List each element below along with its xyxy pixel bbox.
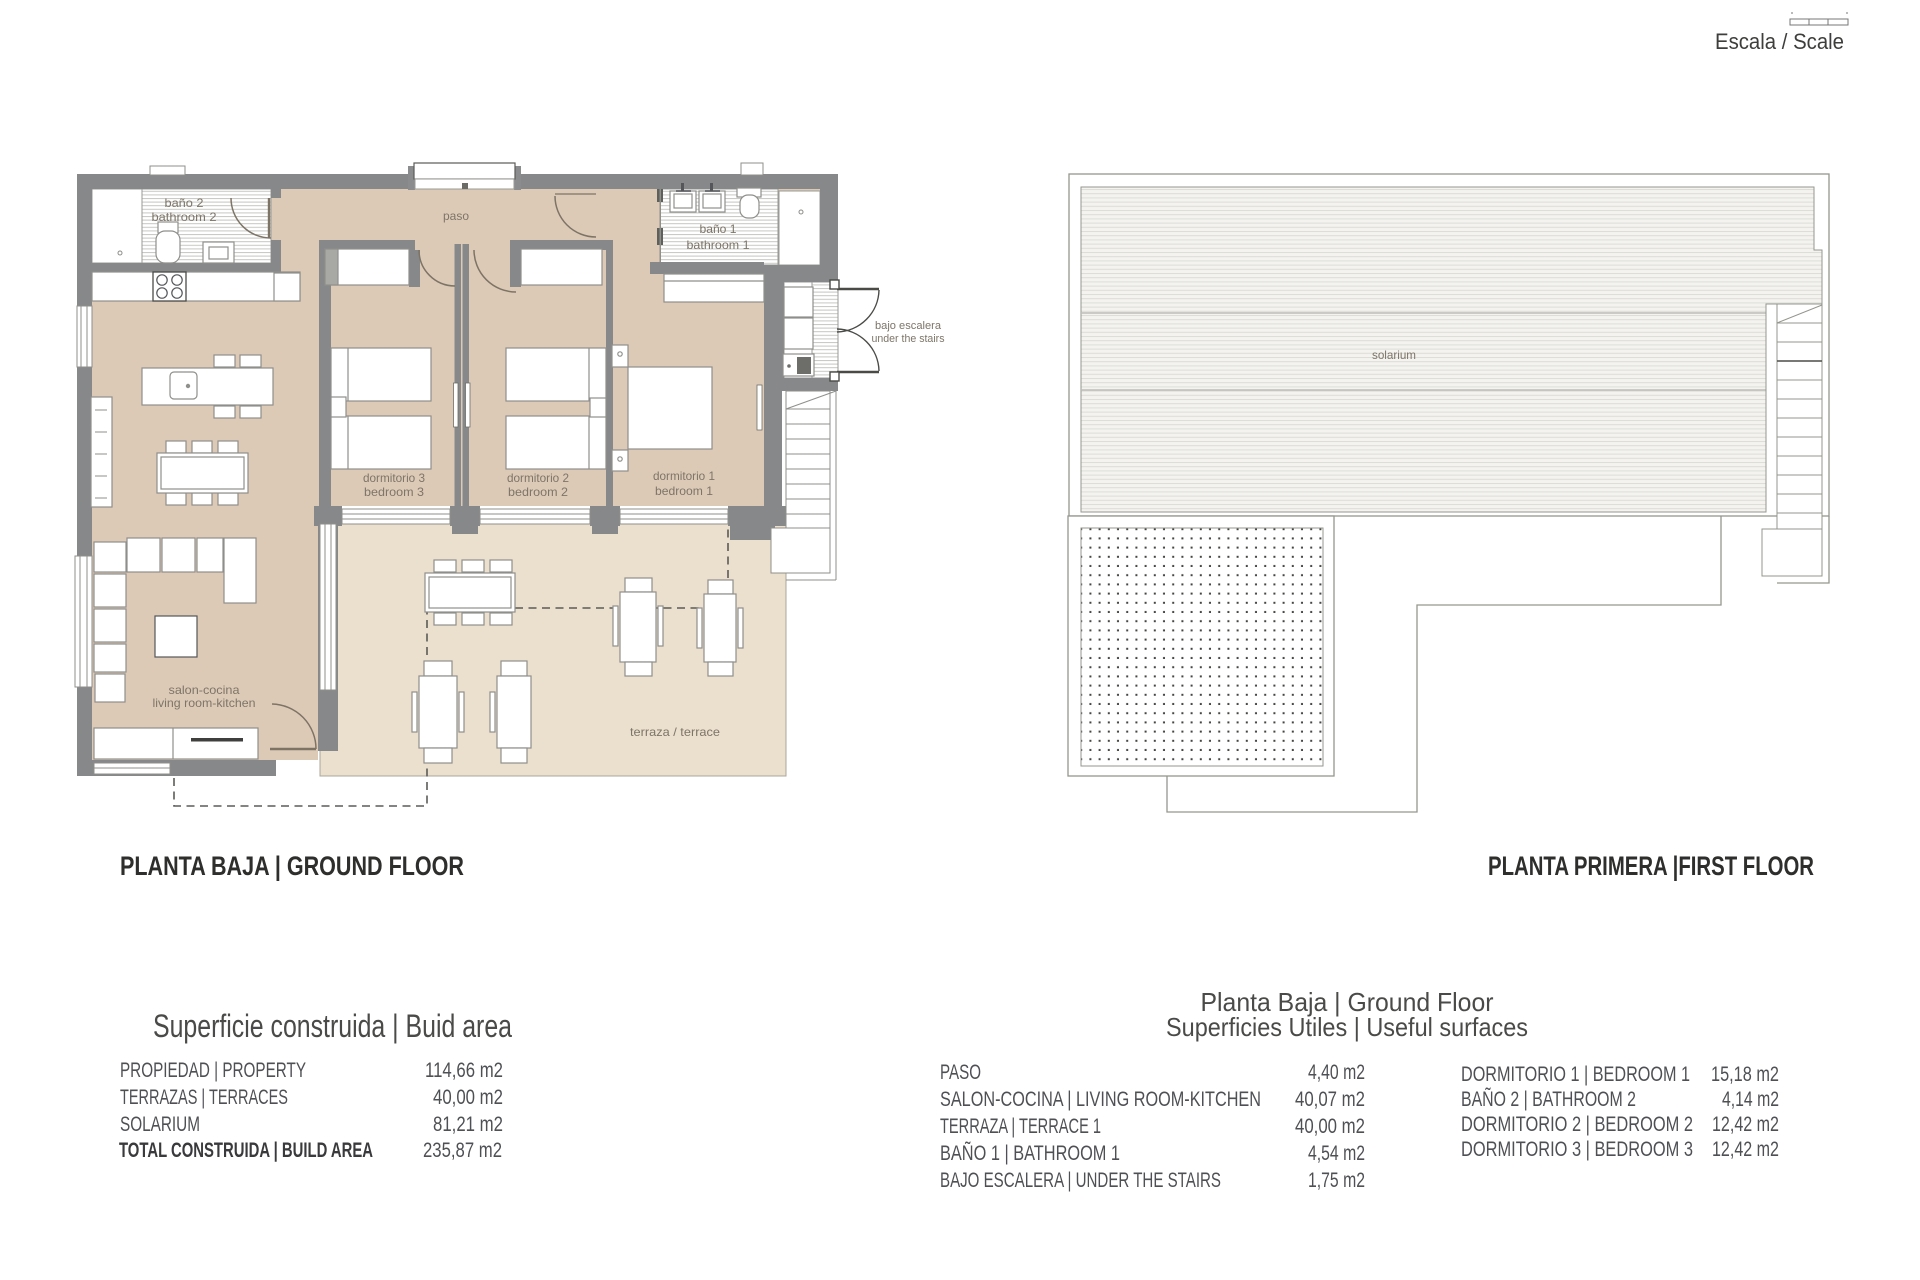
svg-text:Superficies Utiles | Useful su: Superficies Utiles | Useful surfaces <box>1166 1012 1528 1042</box>
svg-text:4,54 m2: 4,54 m2 <box>1308 1142 1365 1165</box>
svg-text:Escala / Scale: Escala / Scale <box>1715 29 1844 54</box>
svg-text:SOLARIUM: SOLARIUM <box>120 1113 200 1136</box>
svg-text:terraza / terrace: terraza / terrace <box>630 725 720 739</box>
svg-text:SALON-COCINA | LIVING ROOM-KIT: SALON-COCINA | LIVING ROOM-KITCHEN <box>940 1088 1261 1111</box>
svg-text:TERRAZA | TERRACE 1: TERRAZA | TERRACE 1 <box>940 1115 1101 1138</box>
svg-text:dormitorio 2: dormitorio 2 <box>507 471 569 485</box>
svg-text:4,14 m2: 4,14 m2 <box>1722 1088 1779 1111</box>
svg-text:living room-kitchen: living room-kitchen <box>153 696 256 710</box>
svg-text:TOTAL CONSTRUIDA | BUILD AREA: TOTAL CONSTRUIDA | BUILD AREA <box>119 1139 373 1162</box>
svg-text:baño 1: baño 1 <box>700 222 737 236</box>
svg-text:bedroom 1: bedroom 1 <box>655 484 713 498</box>
svg-text:solarium: solarium <box>1372 348 1416 362</box>
svg-text:PROPIEDAD | PROPERTY: PROPIEDAD | PROPERTY <box>120 1059 306 1082</box>
svg-text:DORMITORIO 2 | BEDROOM 2: DORMITORIO 2 | BEDROOM 2 <box>1461 1113 1693 1136</box>
svg-text:Superficie construida | Buid a: Superficie construida | Buid area <box>153 1008 512 1044</box>
svg-text:bedroom 3: bedroom 3 <box>364 485 424 499</box>
svg-text:114,66 m2: 114,66 m2 <box>425 1059 503 1082</box>
svg-text:baño 2: baño 2 <box>165 196 204 210</box>
svg-text:bedroom 2: bedroom 2 <box>508 485 568 499</box>
svg-text:paso: paso <box>443 209 469 223</box>
svg-text:40,00 m2: 40,00 m2 <box>1295 1115 1365 1138</box>
svg-text:bathroom 1: bathroom 1 <box>687 238 750 252</box>
svg-text:under the stairs: under the stairs <box>872 333 945 345</box>
svg-text:BAÑO 2 | BATHROOM 2: BAÑO 2 | BATHROOM 2 <box>1461 1087 1636 1111</box>
svg-text:12,42 m2: 12,42 m2 <box>1712 1138 1779 1161</box>
svg-text:PLANTA BAJA | GROUND FLOOR: PLANTA BAJA | GROUND FLOOR <box>120 851 464 881</box>
svg-text:15,18 m2: 15,18 m2 <box>1711 1063 1779 1086</box>
svg-text:salon-cocina: salon-cocina <box>169 683 240 697</box>
svg-text:PASO: PASO <box>940 1061 981 1084</box>
svg-text:4,40 m2: 4,40 m2 <box>1308 1061 1365 1084</box>
svg-text:dormitorio 3: dormitorio 3 <box>363 471 425 485</box>
svg-text:dormitorio 1: dormitorio 1 <box>653 469 715 483</box>
svg-text:BAÑO 1 | BATHROOM 1: BAÑO 1 | BATHROOM 1 <box>940 1141 1120 1165</box>
svg-text:DORMITORIO 1 | BEDROOM 1: DORMITORIO 1 | BEDROOM 1 <box>1461 1063 1690 1086</box>
svg-text:12,42 m2: 12,42 m2 <box>1712 1113 1779 1136</box>
svg-text:40,07 m2: 40,07 m2 <box>1295 1088 1365 1111</box>
svg-text:PLANTA PRIMERA |FIRST FLOOR: PLANTA PRIMERA |FIRST FLOOR <box>1488 851 1814 881</box>
svg-text:235,87 m2: 235,87 m2 <box>423 1139 502 1162</box>
svg-text:BAJO ESCALERA | UNDER THE STAI: BAJO ESCALERA | UNDER THE STAIRS <box>940 1169 1221 1192</box>
svg-text:DORMITORIO 3 | BEDROOM 3: DORMITORIO 3 | BEDROOM 3 <box>1461 1138 1693 1161</box>
svg-text:TERRAZAS | TERRACES: TERRAZAS | TERRACES <box>120 1086 288 1109</box>
svg-text:bajo escalera: bajo escalera <box>875 320 942 332</box>
svg-text:40,00 m2: 40,00 m2 <box>433 1086 503 1109</box>
svg-text:1,75 m2: 1,75 m2 <box>1308 1169 1365 1192</box>
svg-text:bathroom 2: bathroom 2 <box>152 210 217 224</box>
svg-text:81,21 m2: 81,21 m2 <box>433 1113 503 1136</box>
